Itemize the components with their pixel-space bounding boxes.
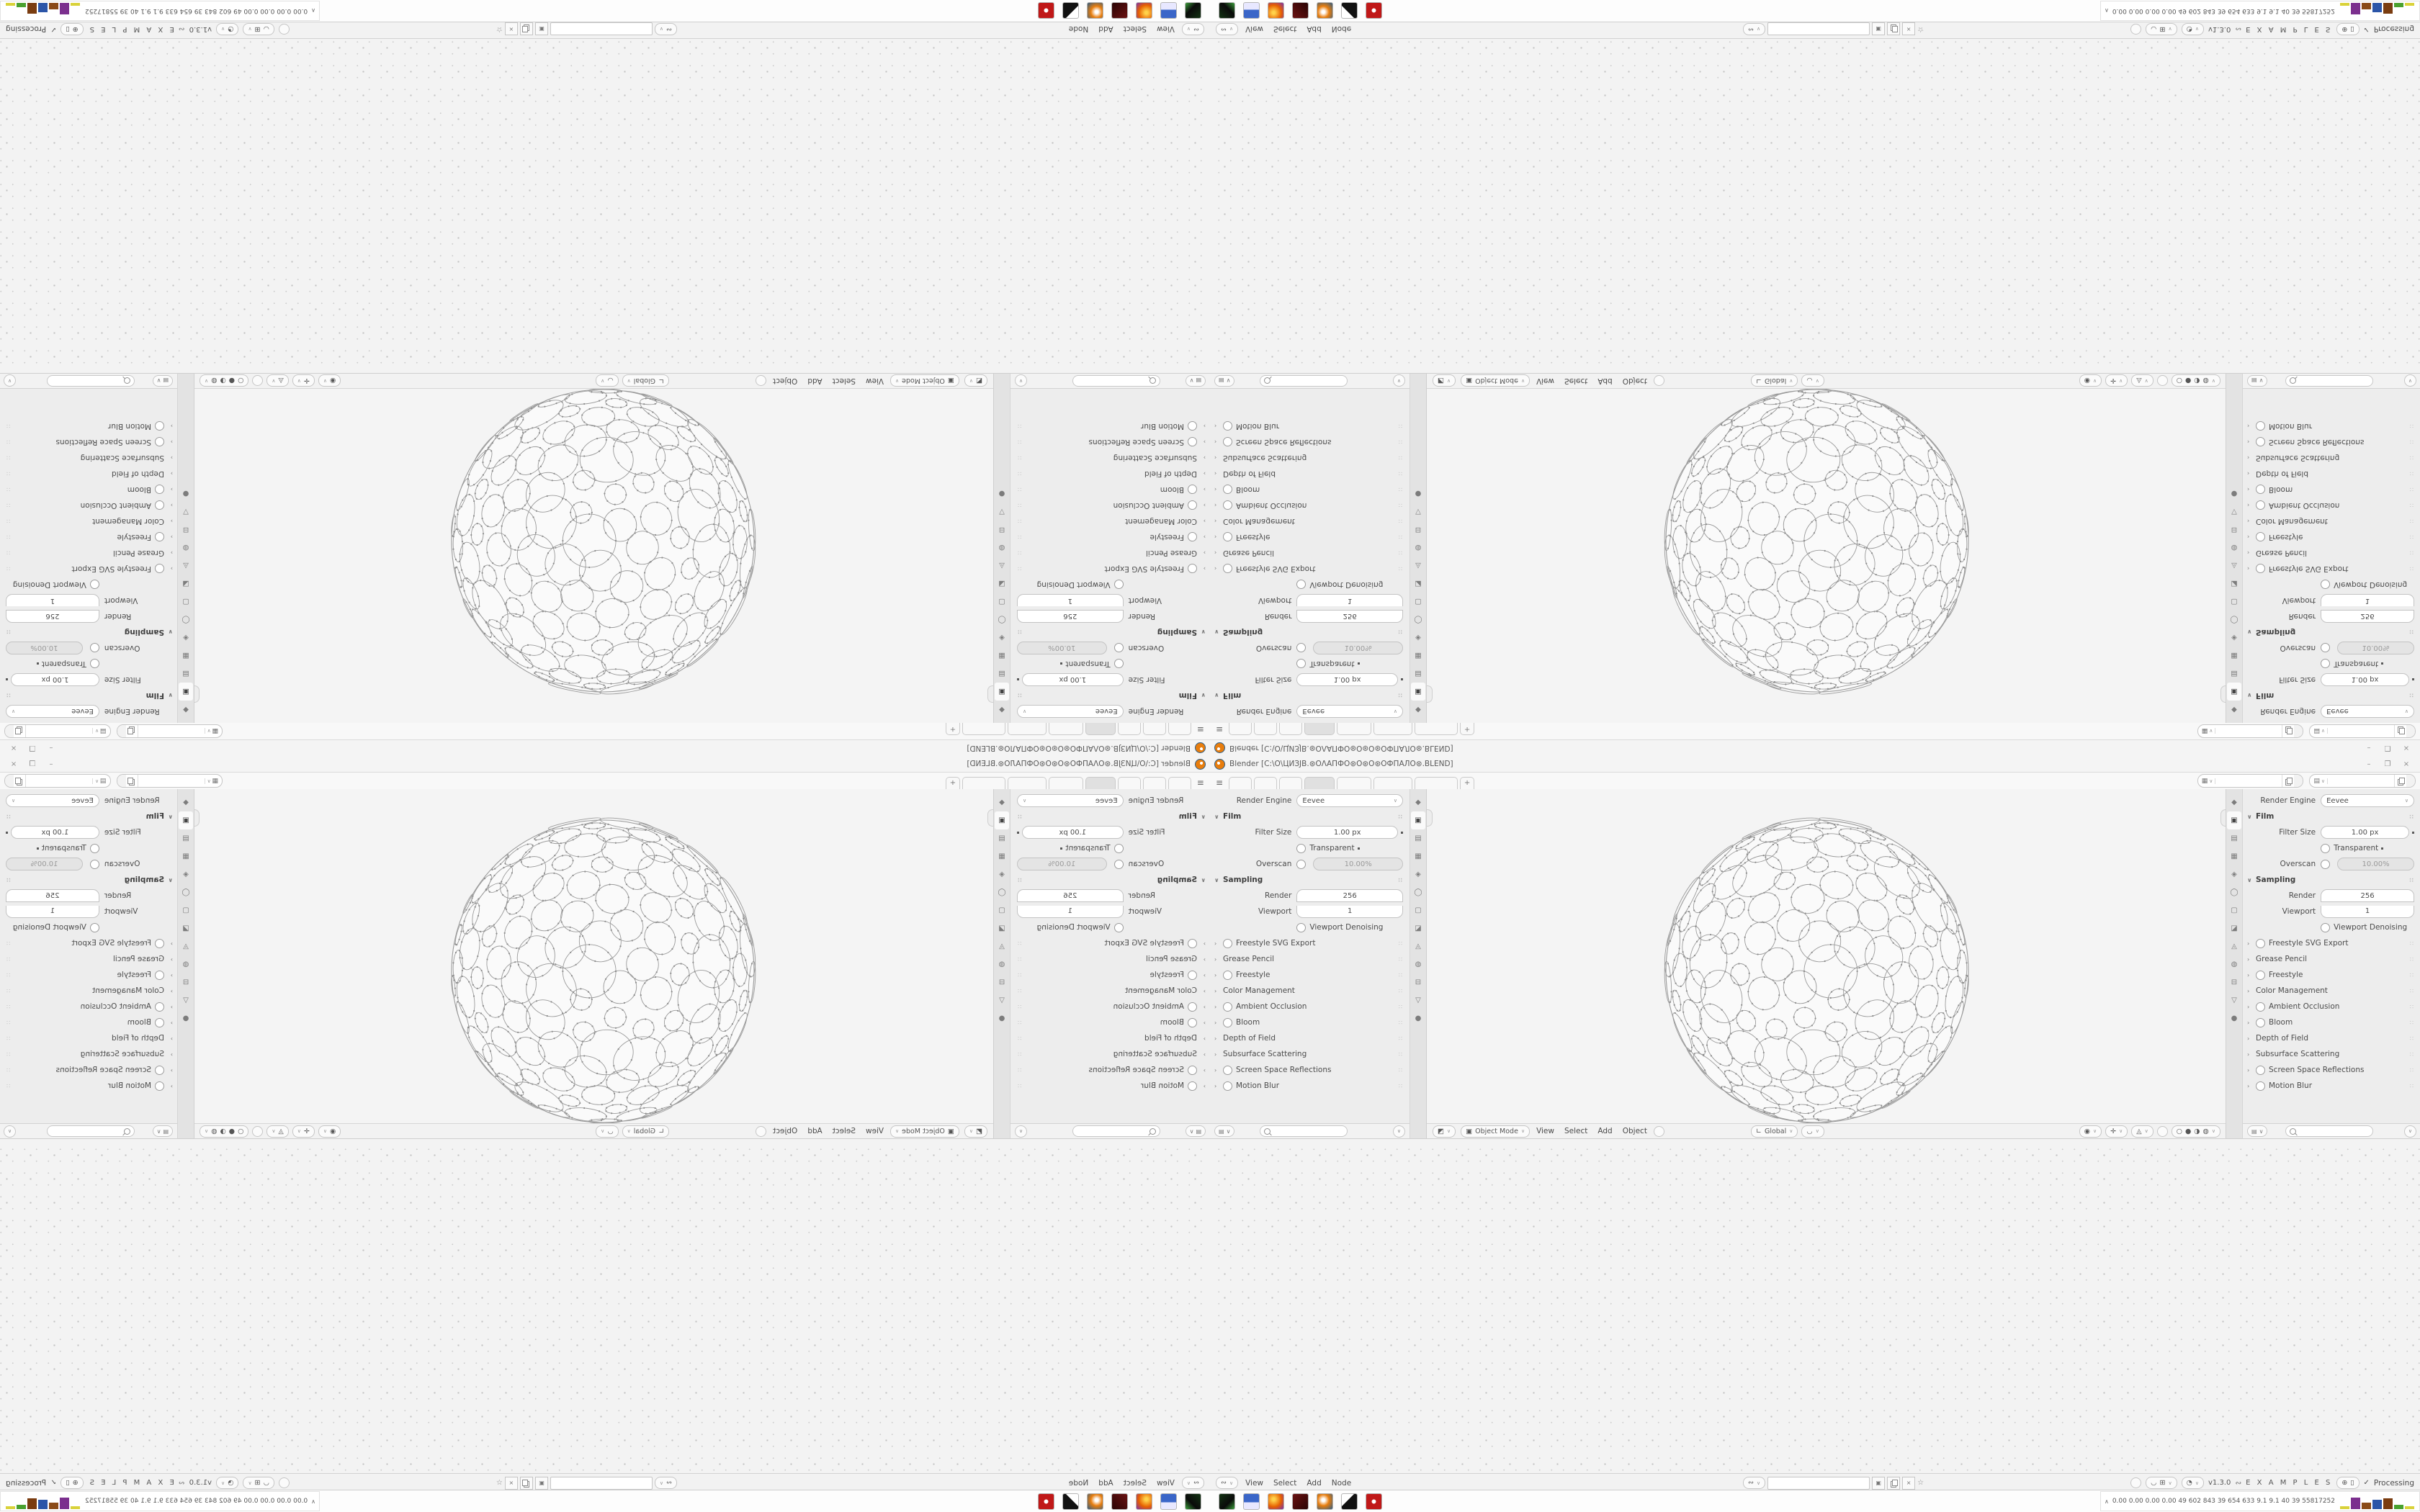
fake-user-icon[interactable]: ☆ [1917,1479,1924,1487]
examples-menu[interactable]: E X A M P L E S [2246,25,2332,33]
viewport-menu-select[interactable]: Select [831,1127,857,1135]
collapsed-panel[interactable]: ›Color Management∷ [2247,983,2414,999]
filter-size-field[interactable]: 1.00 px [2321,673,2409,686]
enable-checkbox[interactable] [1188,422,1197,431]
scene-selector[interactable]: ▦∨ [2197,724,2304,738]
output-tab-icon[interactable]: ▤ [179,829,193,847]
tool-tab-icon[interactable]: ◆ [179,793,193,811]
render-field[interactable]: 256 [1296,889,1403,902]
object-tab-icon[interactable]: ▢ [1411,901,1425,919]
blender-app-icon[interactable] [1087,1493,1103,1510]
unlink-button[interactable]: × [505,23,518,36]
blender-app-icon[interactable] [1087,3,1103,19]
object-data-tab-icon[interactable]: ▽ [995,503,1009,521]
collapsed-panel[interactable]: ›Freestyle∷ [1214,967,1403,983]
examples-menu[interactable]: E X A M P L E S [2246,1479,2332,1487]
scene-tab-icon[interactable]: ◈ [995,629,1009,647]
video-app-icon[interactable] [1292,3,1309,19]
filter-size-field[interactable]: 1.00 px [1022,673,1124,686]
copy-icon[interactable] [126,725,138,737]
render-tab-icon[interactable]: ▣ [2227,683,2241,701]
material-tab-icon[interactable]: ● [179,485,193,503]
collapsed-panel[interactable]: ›Freestyle∷ [6,967,173,983]
processing-check-icon[interactable]: ✓ [50,25,56,33]
processing-label[interactable]: Processing [2374,25,2414,34]
checkbox[interactable] [1296,844,1306,853]
constraints-tab-icon[interactable]: ⊟ [2227,521,2241,539]
node-menu-select[interactable]: Select [1272,1479,1298,1488]
view-layer-tab-icon[interactable]: ▦ [179,647,193,665]
collapsed-panel[interactable]: ›Color Management∷ [2247,513,2414,529]
section-header[interactable]: ∨Film∷ [2247,688,2414,703]
workspace-tab[interactable] [1118,777,1141,789]
copy-icon[interactable] [126,775,138,787]
node-canvas[interactable]: ∨Regular Solid∷Vertices. 1▾Edges. 1▾Poly… [1210,1139,2420,1474]
processing-check-icon[interactable]: ✓ [2364,25,2370,33]
options-button[interactable]: ∨ [1015,375,1027,387]
render-tab-icon[interactable]: ▣ [995,683,1009,701]
view-layer-selector[interactable]: ▤∨ [4,774,111,788]
workspace-tab[interactable] [1049,723,1083,735]
snapping-toggle[interactable]: ◡ ⊞∨ [2146,1477,2177,1489]
editor-type-button[interactable]: ∾∨ [1216,23,1238,35]
filter-size-field[interactable]: 1.00 px [11,673,99,686]
render-tab-icon[interactable]: ▣ [179,683,193,701]
recorder-app-icon[interactable] [1038,1493,1054,1510]
console-app-icon[interactable] [1185,1493,1201,1510]
enable-checkbox[interactable] [2256,1002,2265,1012]
magnet-icon[interactable]: ◉∨ [318,375,341,387]
search-input[interactable] [2285,1125,2373,1137]
shading-mode-buttons[interactable]: ○●◑◍∨ [200,375,248,387]
constraints-tab-icon[interactable]: ⊟ [179,521,193,539]
tree-name-field[interactable] [1767,23,1870,36]
options-button[interactable]: ∨ [2404,1125,2416,1138]
checkbox[interactable] [90,923,99,932]
enable-checkbox[interactable] [1223,533,1232,542]
output-tab-icon[interactable]: ▤ [995,829,1009,847]
options-button[interactable]: ∨ [4,375,16,387]
collapsed-panel[interactable]: ›Freestyle SVG Export∷ [1017,935,1206,951]
processing-check-icon[interactable]: ✓ [50,1479,56,1487]
tray-expand-icon[interactable]: ∧ [311,8,315,14]
restore-button[interactable]: ❐ [2378,744,2397,752]
section-header[interactable]: ∨Sampling∷ [6,872,173,888]
examples-menu[interactable]: E X A M P L E S [88,1479,174,1487]
video-app-icon[interactable] [1111,3,1128,19]
search-input[interactable] [47,375,135,387]
enable-checkbox[interactable] [1188,1018,1197,1027]
world-tab-icon[interactable]: ◯ [1411,883,1425,901]
editor-type-button[interactable]: ◩∨ [964,375,987,387]
save-64-app-icon[interactable] [1160,3,1177,19]
scene-tab-icon[interactable]: ◈ [2227,629,2241,647]
collapsed-panel[interactable]: ›Freestyle∷ [2247,967,2414,983]
viewport-field[interactable]: 1 [6,906,99,918]
inkscape-app-icon[interactable] [1062,3,1079,19]
collapsed-panel[interactable]: ›Bloom∷ [2247,482,2414,498]
collapsed-panel[interactable]: ›Subsurface Scattering∷ [1017,450,1206,466]
shading-mode-buttons[interactable]: ○●◑◍∨ [2172,375,2220,387]
collapsed-panel[interactable]: ›Screen Space Reflections∷ [1214,434,1403,450]
node-menu-add[interactable]: Add [1097,1479,1114,1488]
snapping-toggle[interactable]: ◡ ⊞∨ [243,1477,274,1489]
collapsed-panel[interactable]: ›Freestyle∷ [1214,529,1403,545]
particles-tab-icon[interactable]: ◬ [179,557,193,575]
modifiers-tab-icon[interactable]: ◪ [179,575,193,593]
editor-type-button[interactable]: ▤∨ [1186,375,1206,387]
close-button[interactable]: × [4,760,23,768]
enable-checkbox[interactable] [2256,438,2265,447]
editor-type-button[interactable]: ∾∨ [1182,23,1204,35]
gizmo-icon[interactable] [252,376,263,387]
view-layer-selector[interactable]: ▤∨ [4,724,111,738]
restore-button[interactable]: ❐ [23,760,42,768]
collapsed-panel[interactable]: ›Subsurface Scattering∷ [1214,450,1403,466]
viewport-menu-select[interactable]: Select [831,377,857,385]
scene-tab-icon[interactable]: ◈ [1411,629,1425,647]
checkbox[interactable] [1114,844,1124,853]
scene-selector[interactable]: ▦∨ [2197,774,2304,788]
enable-checkbox[interactable] [1223,438,1232,447]
constraints-tab-icon[interactable]: ⊟ [1411,521,1425,539]
tool-tab-icon[interactable]: ◆ [179,701,193,719]
tool-pair-buttons[interactable]: ⊕ ▯ [2336,1477,2359,1489]
enable-checkbox[interactable] [1188,501,1197,510]
processing-check-icon[interactable]: ✓ [2364,1479,2370,1487]
tool-tab-icon[interactable]: ◆ [995,701,1009,719]
snapping-toggle[interactable]: ◡ ⊞∨ [243,23,274,35]
collapsed-panel[interactable]: ›Freestyle SVG Export∷ [6,561,173,577]
fake-user-icon[interactable]: ☆ [496,25,503,33]
enable-checkbox[interactable] [1223,971,1232,980]
editor-type-button[interactable]: ∾∨ [1182,1477,1204,1489]
checkbox[interactable] [1114,660,1124,669]
editor-type-button[interactable]: ▤∨ [153,1125,173,1137]
render-tab-icon[interactable]: ▣ [1411,811,1425,829]
checkbox[interactable] [1296,860,1306,869]
console-app-icon[interactable] [1185,3,1201,19]
collapsed-panel[interactable]: ›Ambient Occlusion∷ [1214,498,1403,513]
scene-tab-icon[interactable]: ◈ [995,865,1009,883]
collapsed-panel[interactable]: ›Screen Space Reflections∷ [2247,434,2414,450]
tool-pair-buttons[interactable]: ⊕ ▯ [2336,23,2359,35]
physics-tab-icon[interactable]: ◍ [2227,539,2241,557]
filter-size-field[interactable]: 1.00 px [1296,826,1398,839]
enable-checkbox[interactable] [2256,564,2265,574]
material-tab-icon[interactable]: ● [179,1009,193,1027]
collapsed-panel[interactable]: ›Screen Space Reflections∷ [6,1062,173,1078]
enable-checkbox[interactable] [155,1081,164,1091]
save-64-app-icon[interactable] [1243,3,1260,19]
inkscape-app-icon[interactable] [1341,1493,1358,1510]
collapsed-panel[interactable]: ›Screen Space Reflections∷ [1017,434,1206,450]
enable-checkbox[interactable] [155,939,164,948]
active-tool-icon[interactable] [1654,1126,1664,1137]
checkbox[interactable] [1296,923,1306,932]
enable-checkbox[interactable] [2256,1018,2265,1027]
tree-browse-button[interactable]: ∾∨ [1743,1477,1765,1489]
shield-icon[interactable]: ▣ [1872,1477,1885,1490]
transform-orientation-dropdown[interactable]: ∟ Global∨ [622,375,669,387]
viewport-menu-object[interactable]: Object [771,1127,799,1135]
enable-checkbox[interactable] [1188,564,1197,574]
scene-selector-field[interactable] [138,775,205,787]
viewport-field[interactable]: 1 [2321,595,2414,607]
workspace-tab[interactable] [1049,777,1083,789]
enable-checkbox[interactable] [1223,485,1232,495]
minimize-button[interactable]: – [42,760,60,768]
section-header[interactable]: ∨Sampling∷ [1214,872,1403,888]
object-data-tab-icon[interactable]: ▽ [995,991,1009,1009]
constraints-tab-icon[interactable]: ⊟ [2227,973,2241,991]
workspace-tab[interactable] [1143,777,1166,789]
enable-checkbox[interactable] [2256,939,2265,948]
enable-checkbox[interactable] [155,1002,164,1012]
enable-checkbox[interactable] [1188,438,1197,447]
processing-label[interactable]: Processing [2374,1479,2414,1488]
tool-pair-buttons[interactable]: ⊕ ▯ [60,23,83,35]
viewport-menu-add[interactable]: Add [1596,377,1613,385]
collapsed-panel[interactable]: ›Freestyle SVG Export∷ [1017,561,1206,577]
material-tab-icon[interactable]: ● [2227,485,2241,503]
app-menu-icon[interactable]: ≡ [1216,724,1223,734]
checkbox[interactable] [90,860,99,869]
modifiers-tab-icon[interactable]: ◪ [995,575,1009,593]
mode-dropdown[interactable]: ▣ Object Mode∨ [1461,375,1530,387]
collapsed-panel[interactable]: ›Grease Pencil∷ [1017,951,1206,967]
enable-checkbox[interactable] [2256,1081,2265,1091]
snapping-toggle[interactable]: ◡ ⊞∨ [2146,23,2177,35]
collapsed-panel[interactable]: ›Grease Pencil∷ [2247,545,2414,561]
filter-size-field[interactable]: 1.00 px [11,826,99,839]
toolbar-toggle-icon[interactable] [987,685,994,703]
search-input[interactable] [2285,375,2373,387]
view-layer-selector-field[interactable] [26,725,92,737]
collapsed-panel[interactable]: ›Bloom∷ [2247,1014,2414,1030]
options-button[interactable]: ∨ [4,1125,16,1138]
recorder-app-icon[interactable] [1366,3,1382,19]
inkscape-app-icon[interactable] [1341,3,1358,19]
enable-checkbox[interactable] [2256,422,2265,431]
output-tab-icon[interactable]: ▤ [995,665,1009,683]
snapping-dropdown[interactable]: ◡∨ [596,375,618,387]
editor-type-button[interactable]: ◩∨ [1433,375,1456,387]
collapsed-panel[interactable]: ›Color Management∷ [1214,513,1403,529]
workspace-tab[interactable] [1254,777,1277,789]
video-app-icon[interactable] [1292,1493,1309,1510]
collapsed-panel[interactable]: ›Depth of Field∷ [2247,466,2414,482]
particles-tab-icon[interactable]: ◬ [995,557,1009,575]
view-layer-tab-icon[interactable]: ▦ [1411,847,1425,865]
physics-tab-icon[interactable]: ◍ [179,539,193,557]
view-layer-tab-icon[interactable]: ▦ [995,647,1009,665]
render-engine-dropdown[interactable]: Eevee∨ [1296,705,1403,718]
collapsed-panel[interactable]: ›Subsurface Scattering∷ [2247,450,2414,466]
toolbar-toggle-icon[interactable] [1426,685,1433,703]
output-tab-icon[interactable]: ▤ [179,665,193,683]
object-tab-icon[interactable]: ▢ [179,593,193,611]
render-engine-dropdown[interactable]: Eevee∨ [6,705,99,718]
workspace-tab[interactable] [1415,723,1458,735]
collapsed-panel[interactable]: ›Depth of Field∷ [2247,1030,2414,1046]
close-button[interactable]: × [2397,744,2416,752]
workspace-tab[interactable] [1304,777,1335,789]
checkbox[interactable] [2321,844,2330,853]
constraints-tab-icon[interactable]: ⊟ [995,973,1009,991]
object-data-tab-icon[interactable]: ▽ [1411,503,1425,521]
processing-label[interactable]: Processing [6,25,46,34]
shading-mode-buttons[interactable]: ○●◑◍∨ [2172,1125,2220,1138]
enable-checkbox[interactable] [1188,485,1197,495]
enable-checkbox[interactable] [1188,971,1197,980]
shield-icon[interactable]: ▣ [1872,23,1885,36]
gizmo-icon[interactable] [2157,1126,2168,1137]
enable-checkbox[interactable] [155,501,164,510]
constraints-tab-icon[interactable]: ⊟ [179,973,193,991]
overscan-field[interactable]: 10.00% [1017,642,1107,654]
fake-user-icon[interactable]: ☆ [496,1479,503,1487]
workspace-tab[interactable] [1008,723,1047,735]
collapsed-panel[interactable]: ›Motion Blur∷ [1214,418,1403,434]
collapsed-panel[interactable]: ›Subsurface Scattering∷ [6,450,173,466]
section-header[interactable]: ∨Sampling∷ [1017,624,1206,640]
collapsed-panel[interactable]: ›Bloom∷ [1214,1014,1403,1030]
collapsed-panel[interactable]: ›Freestyle SVG Export∷ [2247,561,2414,577]
collapsed-panel[interactable]: ›Freestyle∷ [6,529,173,545]
enable-checkbox[interactable] [1188,939,1197,948]
render-tab-icon[interactable]: ▣ [179,811,193,829]
copy-icon[interactable] [2282,725,2294,737]
output-tab-icon[interactable]: ▤ [1411,665,1425,683]
view-layer-tab-icon[interactable]: ▦ [1411,647,1425,665]
section-header[interactable]: ∨Film∷ [2247,809,2414,824]
node-menu-node[interactable]: Node [1330,1479,1353,1488]
view-layer-selector-field[interactable] [2328,725,2394,737]
viewport-field[interactable]: 1 [1296,595,1403,607]
examples-menu[interactable]: E X A M P L E S [88,25,174,33]
view-layer-selector[interactable]: ▤∨ [2309,774,2416,788]
world-tab-icon[interactable]: ◯ [2227,611,2241,629]
collapsed-panel[interactable]: ›Depth of Field∷ [1017,466,1206,482]
workspace-tab[interactable] [1008,777,1047,789]
enable-checkbox[interactable] [155,564,164,574]
node-menu-add[interactable]: Add [1305,1479,1322,1488]
scene-selector-field[interactable] [2215,775,2282,787]
object-tab-icon[interactable]: ▢ [1411,593,1425,611]
world-tab-icon[interactable]: ◯ [995,883,1009,901]
modifiers-tab-icon[interactable]: ◪ [179,919,193,937]
viewport-menu-view[interactable]: View [864,1127,885,1135]
object-data-tab-icon[interactable]: ▽ [1411,991,1425,1009]
overscan-field[interactable]: 10.00% [1313,642,1403,654]
restore-button[interactable]: ❐ [23,744,42,752]
tree-name-field[interactable] [1767,1477,1870,1490]
collapsed-panel[interactable]: ›Freestyle∷ [1017,967,1206,983]
viewport-menu-add[interactable]: Add [1596,1127,1613,1135]
section-header[interactable]: ∨Film∷ [1214,809,1403,824]
tray-expand-icon[interactable]: ∧ [2105,8,2109,14]
section-header[interactable]: ∨Sampling∷ [1214,624,1403,640]
object-tab-icon[interactable]: ▢ [2227,901,2241,919]
modifiers-tab-icon[interactable]: ◪ [2227,919,2241,937]
copy-icon[interactable] [1887,1477,1900,1490]
modifiers-tab-icon[interactable]: ◪ [1411,575,1425,593]
enable-checkbox[interactable] [155,485,164,495]
enable-checkbox[interactable] [1188,1002,1197,1012]
viewport-field[interactable]: 1 [1296,906,1403,918]
particles-tab-icon[interactable]: ◬ [1411,557,1425,575]
snap-target-icon[interactable] [2130,24,2141,35]
collapsed-panel[interactable]: ›Screen Space Reflections∷ [1214,1062,1403,1078]
tool-pair-buttons[interactable]: ⊕ ▯ [60,1477,83,1489]
copy-icon[interactable] [2282,775,2294,787]
node-canvas[interactable]: ∨Regular Solid∷Vertices. 1▾Edges. 1▾Poly… [0,1139,1210,1474]
collapsed-panel[interactable]: ›Motion Blur∷ [1214,1078,1403,1094]
shading-mode-buttons[interactable]: ○●◑◍∨ [200,1125,248,1138]
view-layer-tab-icon[interactable]: ▦ [179,847,193,865]
workspace-tab[interactable] [1118,723,1141,735]
editor-type-button[interactable]: ◩∨ [964,1125,987,1138]
node-menu-node[interactable]: Node [1067,25,1090,34]
collapsed-panel[interactable]: ›Color Management∷ [1017,983,1206,999]
section-header[interactable]: ∨Sampling∷ [6,624,173,640]
object-tab-icon[interactable]: ▢ [995,593,1009,611]
workspace-tab[interactable] [1254,723,1277,735]
workspace-tab[interactable] [1168,723,1191,735]
add-workspace-button[interactable]: + [946,723,960,735]
viewport-field[interactable]: 1 [1017,595,1124,607]
gizmo-icon[interactable] [2157,376,2168,387]
node-menu-add[interactable]: Add [1097,25,1114,34]
overlays-icon[interactable]: ◬∨ [266,1125,288,1138]
node-menu-node[interactable]: Node [1330,25,1353,34]
particles-tab-icon[interactable]: ◬ [2227,937,2241,955]
viewport-menu-select[interactable]: Select [1563,1127,1589,1135]
editor-type-button[interactable]: ▤∨ [1214,1125,1234,1137]
tree-browse-button[interactable]: ∾∨ [655,23,677,35]
particles-tab-icon[interactable]: ◬ [995,937,1009,955]
overscan-field[interactable]: 10.00% [6,858,83,870]
options-button[interactable]: ∨ [2404,375,2416,387]
section-header[interactable]: ∨Sampling∷ [1017,872,1206,888]
constraints-tab-icon[interactable]: ⊟ [1411,973,1425,991]
app-menu-icon[interactable]: ≡ [1197,778,1204,788]
tool-tab-icon[interactable]: ◆ [1411,793,1425,811]
view-layer-selector[interactable]: ▤∨ [2309,724,2416,738]
material-tab-icon[interactable]: ● [1411,1009,1425,1027]
render-engine-dropdown[interactable]: Eevee∨ [1017,705,1124,718]
collapsed-panel[interactable]: ›Motion Blur∷ [2247,1078,2414,1094]
node-menu-view[interactable]: View [1155,1479,1176,1488]
object-data-tab-icon[interactable]: ▽ [2227,503,2241,521]
console-app-icon[interactable] [1219,3,1235,19]
enable-checkbox[interactable] [1223,422,1232,431]
tool-tab-icon[interactable]: ◆ [2227,701,2241,719]
constraints-tab-icon[interactable]: ⊟ [995,521,1009,539]
enable-checkbox[interactable] [2256,485,2265,495]
processing-label[interactable]: Processing [6,1479,46,1488]
transform-orientation-dropdown[interactable]: ∟ Global∨ [1751,1125,1798,1138]
snap-target-icon[interactable] [279,24,290,35]
physics-tab-icon[interactable]: ◍ [2227,955,2241,973]
magnet-icon[interactable]: ◉∨ [318,1125,341,1138]
tray-expand-icon[interactable]: ∧ [311,1498,315,1505]
editor-type-button[interactable]: ▤∨ [1186,1125,1206,1137]
editor-type-button[interactable]: ▤∨ [153,375,173,387]
minimize-button[interactable]: – [2359,760,2378,768]
app-menu-icon[interactable]: ≡ [1216,778,1223,788]
